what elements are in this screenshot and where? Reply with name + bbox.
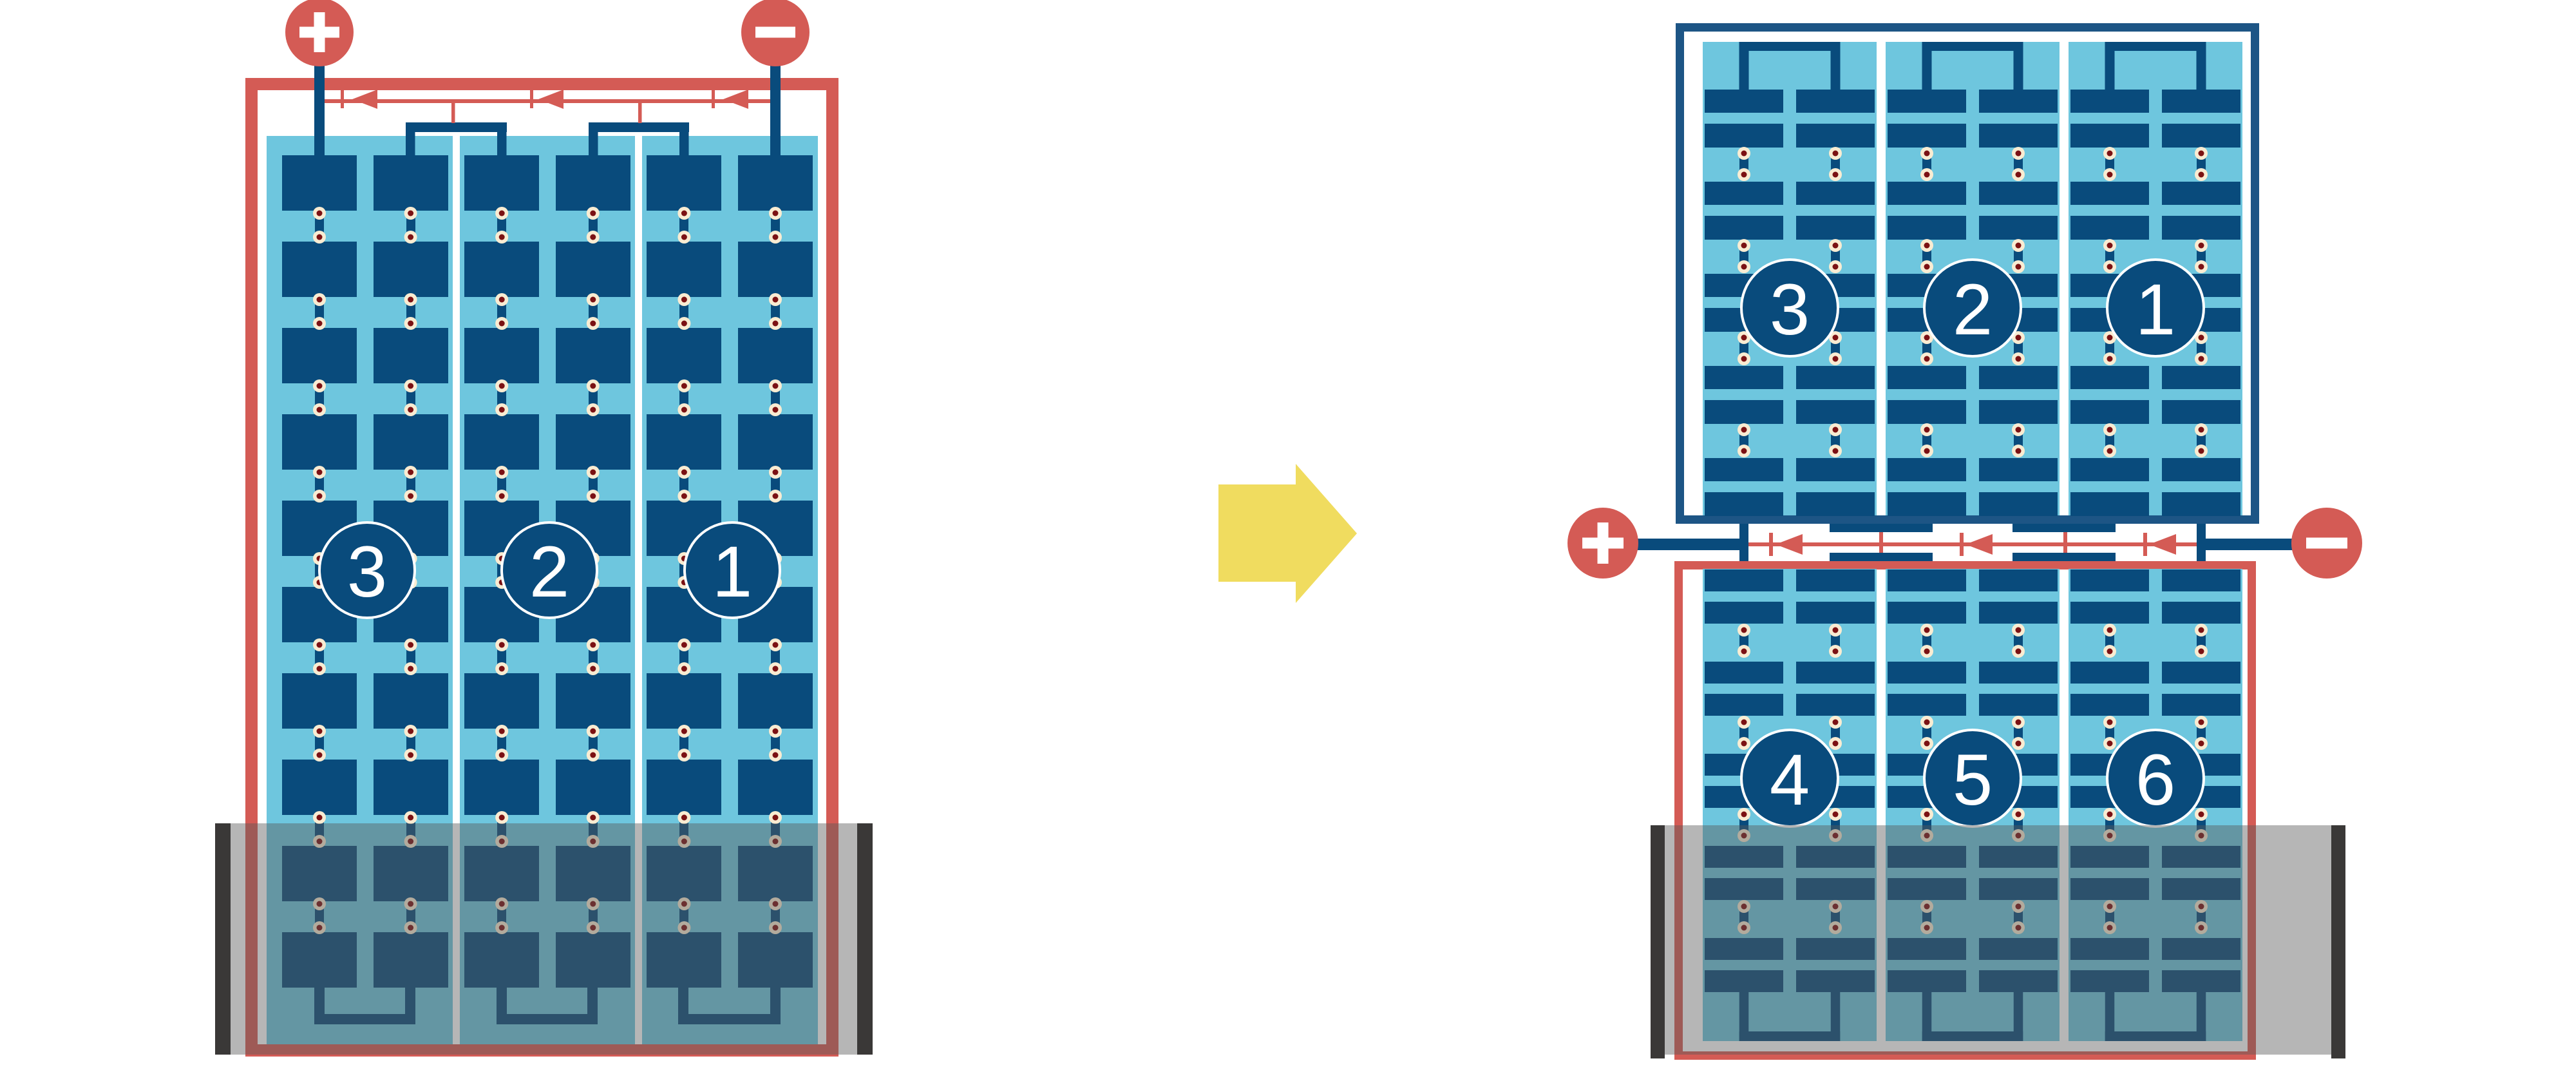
svg-text:6: 6 xyxy=(2136,740,2175,820)
svg-text:4: 4 xyxy=(1770,740,1810,820)
svg-text:3: 3 xyxy=(347,531,387,612)
svg-text:1: 1 xyxy=(712,531,752,612)
svg-text:3: 3 xyxy=(1770,269,1810,350)
svg-text:2: 2 xyxy=(529,531,569,612)
svg-text:2: 2 xyxy=(1953,269,1993,350)
svg-text:1: 1 xyxy=(2136,269,2175,350)
svg-text:5: 5 xyxy=(1953,740,1993,820)
